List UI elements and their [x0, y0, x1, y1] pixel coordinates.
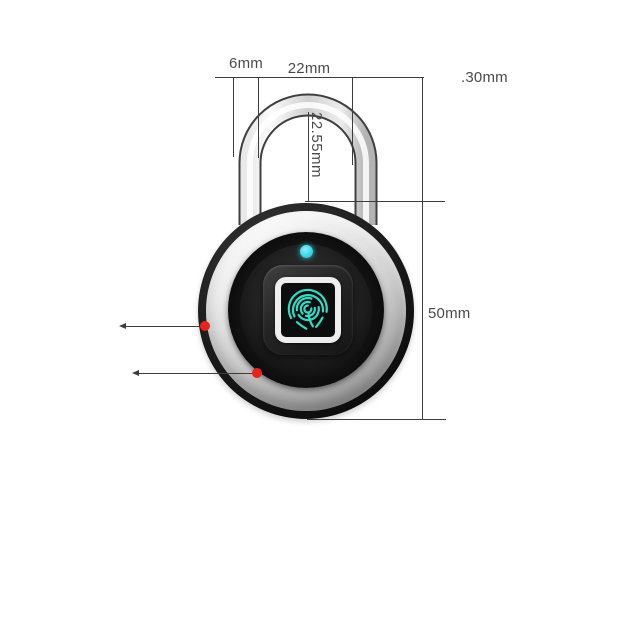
product-dimension-diagram: 6mm 22mm .30mm 22.55mm 50mm	[0, 0, 620, 620]
dim-tick-wire-right	[258, 77, 259, 158]
dim-label-wire-diameter: 6mm	[226, 55, 266, 72]
dim-line-body-top	[305, 201, 445, 202]
led-indicator	[300, 245, 313, 258]
dim-line-bottom	[307, 419, 446, 420]
dim-label-inner-width: 22mm	[285, 60, 333, 77]
dim-label-body-height: 50mm	[428, 305, 470, 322]
callout-line-2	[137, 373, 257, 374]
callout-dot-1	[200, 321, 210, 331]
dim-line-right-vertical	[422, 77, 423, 419]
dim-label-inner-height: 22.55mm	[308, 112, 325, 178]
dim-line-top	[215, 77, 424, 78]
dim-tick-wire-left	[233, 77, 234, 157]
dim-tick-inner-right	[352, 77, 353, 165]
fingerprint-icon	[285, 287, 331, 333]
callout-dot-2	[252, 368, 262, 378]
dim-label-shackle-height: .30mm	[461, 69, 508, 86]
callout-line-1	[124, 326, 205, 327]
